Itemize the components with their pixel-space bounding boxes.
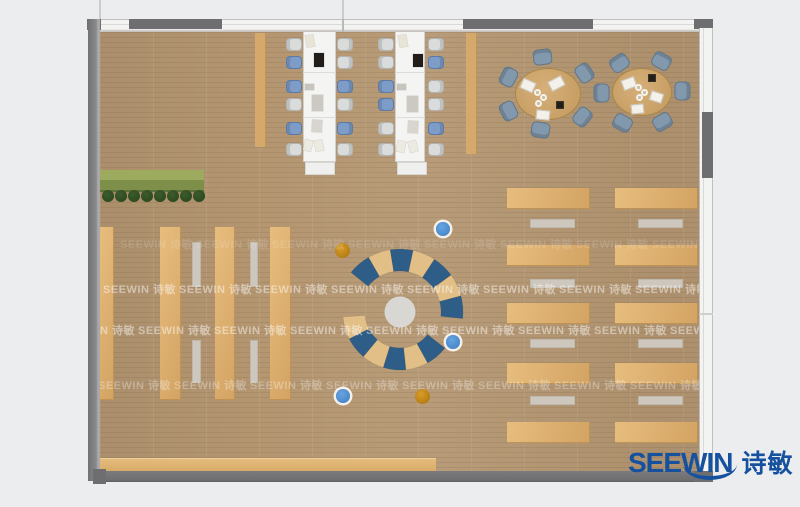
window-mullion [342, 19, 344, 32]
right-wall-segment [702, 112, 713, 178]
blue-ottoman [446, 335, 460, 349]
blue-ottoman [436, 222, 450, 236]
logo-text-cn: 诗敏 [741, 444, 793, 480]
top-wall-segment-left [129, 19, 222, 29]
bottom-wall [93, 471, 704, 482]
blue-ottoman [336, 389, 350, 403]
top-wall-segment-right [463, 19, 593, 29]
right-window-wall [699, 28, 713, 472]
left-wall [88, 19, 100, 481]
floor-plan-stage: SEEWIN 诗敏SEEWIN 诗敏SEEWIN 诗敏SEEWIN 诗敏SEEW… [0, 0, 800, 507]
bottom-left-corner [93, 469, 106, 484]
exterior-line-mid [342, 0, 344, 19]
orange-ottoman [415, 389, 430, 404]
seewin-logo: SEEWIN 诗敏 [628, 444, 793, 480]
right-window-divider [699, 313, 713, 315]
ottoman-dots-layer [0, 0, 800, 507]
exterior-line-left [99, 0, 101, 19]
orange-ottoman [335, 243, 350, 258]
